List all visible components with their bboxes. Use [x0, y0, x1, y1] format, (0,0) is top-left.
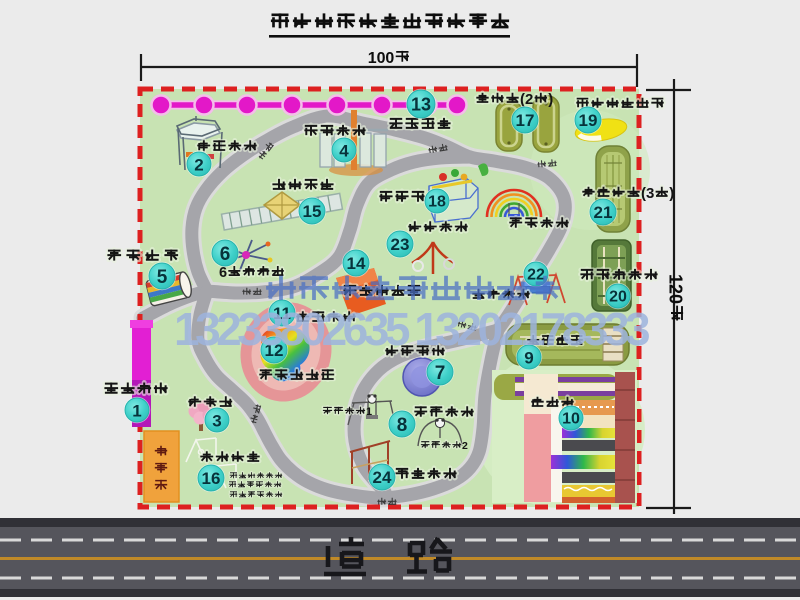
svg-text:22: 22 — [527, 267, 545, 284]
svg-text:2: 2 — [666, 284, 686, 294]
svg-text:0: 0 — [666, 294, 686, 304]
svg-text:3: 3 — [212, 411, 221, 430]
svg-text:13: 13 — [411, 95, 431, 115]
svg-text:2: 2 — [462, 440, 468, 452]
svg-text:18: 18 — [428, 194, 446, 211]
svg-text:3: 3 — [646, 185, 654, 202]
svg-text:23: 23 — [391, 235, 410, 254]
svg-text:0: 0 — [385, 50, 394, 67]
svg-text:10: 10 — [562, 411, 580, 428]
svg-text:1: 1 — [132, 401, 141, 420]
svg-text:13233802635 13202178333: 13233802635 13202178333 — [174, 303, 649, 355]
svg-text:16: 16 — [202, 469, 221, 488]
svg-text:6: 6 — [219, 265, 227, 281]
svg-text:15: 15 — [303, 202, 322, 221]
svg-text:1: 1 — [368, 50, 377, 67]
svg-text:0: 0 — [377, 50, 386, 67]
svg-text:2: 2 — [525, 91, 533, 108]
svg-text:14: 14 — [347, 254, 366, 273]
svg-text:21: 21 — [594, 203, 613, 222]
svg-text:17: 17 — [516, 111, 535, 130]
svg-text:1: 1 — [666, 274, 686, 284]
svg-text:1: 1 — [366, 406, 372, 418]
svg-text:5: 5 — [157, 267, 168, 288]
svg-text:6: 6 — [220, 244, 231, 265]
svg-text:7: 7 — [435, 363, 446, 384]
svg-text:4: 4 — [339, 141, 349, 160]
svg-text:8: 8 — [397, 415, 408, 436]
svg-text:2: 2 — [194, 155, 203, 174]
svg-text:): ) — [669, 185, 674, 202]
svg-text:): ) — [548, 91, 553, 108]
svg-text:19: 19 — [579, 111, 598, 130]
svg-text:24: 24 — [373, 468, 392, 487]
